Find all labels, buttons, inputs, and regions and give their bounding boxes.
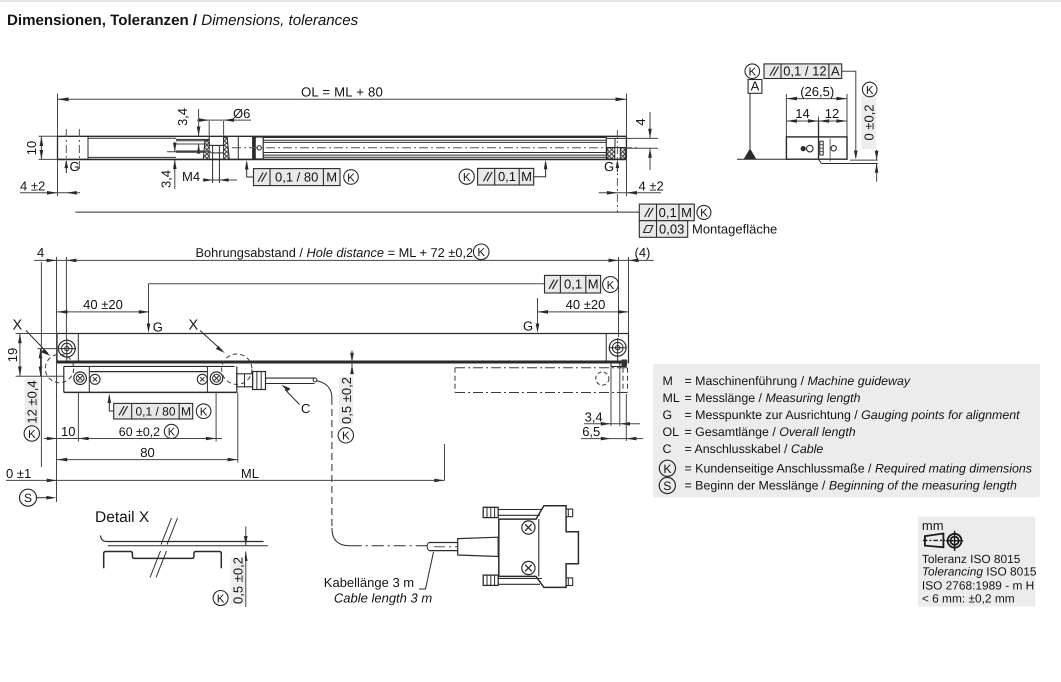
svg-text:G: G: [153, 320, 163, 335]
svg-text:OL= Gesamtlänge / Overall leng: OL= Gesamtlänge / Overall length: [663, 425, 856, 439]
svg-text:X: X: [13, 318, 23, 334]
svg-text:Bohrungsabstand / Hole distanc: Bohrungsabstand / Hole distance = ML + 7…: [196, 245, 474, 260]
svg-text:12 ±0,4: 12 ±0,4: [25, 380, 40, 423]
svg-text:0,1 / 12: 0,1 / 12: [783, 64, 826, 79]
svg-text:K: K: [866, 85, 874, 97]
svg-text:OL = ML + 80: OL = ML + 80: [301, 85, 383, 100]
svg-text:G= Messpunkte zur Ausrichtung: G= Messpunkte zur Ausrichtung / Gauging …: [663, 408, 1021, 422]
svg-text:0,1: 0,1: [564, 277, 582, 292]
svg-text:Dimensionen, Toleranzen / Dime: Dimensionen, Toleranzen / Dimensions, to…: [7, 12, 359, 29]
svg-text:0,1 / 80: 0,1 / 80: [275, 170, 318, 185]
svg-text:0,1: 0,1: [659, 205, 677, 220]
svg-text:X: X: [189, 318, 199, 334]
svg-text:14: 14: [795, 106, 809, 121]
svg-text:K: K: [347, 172, 355, 184]
svg-text:S: S: [663, 479, 671, 493]
svg-text:= Beginn der Messlänge / Begin: = Beginn der Messlänge / Beginning of th…: [685, 478, 1017, 492]
svg-text:4 ±2: 4 ±2: [20, 179, 45, 194]
svg-text:40 ±20: 40 ±20: [83, 297, 123, 312]
svg-text:K: K: [28, 429, 36, 441]
svg-text:12: 12: [825, 106, 839, 121]
svg-text:Tolerancing ISO 8015: Tolerancing ISO 8015: [922, 564, 1037, 578]
svg-text:S: S: [24, 491, 32, 505]
svg-text:K: K: [342, 431, 350, 443]
svg-text:Detail X: Detail X: [95, 509, 150, 526]
svg-text:A: A: [831, 64, 840, 79]
svg-text:A: A: [751, 79, 760, 94]
svg-text:0,03: 0,03: [659, 222, 684, 237]
svg-text:K: K: [700, 208, 708, 220]
svg-text:0 ±1: 0 ±1: [6, 466, 31, 481]
svg-text:4 ±2: 4 ±2: [639, 179, 664, 194]
svg-text:Ø6: Ø6: [233, 106, 250, 121]
svg-text:< 6 mm: ±0,2 mm: < 6 mm: ±0,2 mm: [922, 591, 1015, 605]
svg-text:6,5: 6,5: [582, 424, 600, 439]
svg-text:4: 4: [37, 245, 44, 260]
svg-text:K: K: [463, 172, 471, 184]
svg-text:= Kundenseitige Anschlussmaße: = Kundenseitige Anschlussmaße / Required…: [685, 461, 1032, 475]
svg-text:Cable length 3 m: Cable length 3 m: [334, 591, 432, 606]
svg-text:G: G: [70, 159, 80, 174]
svg-text:0 ±0,2: 0 ±0,2: [862, 104, 877, 140]
svg-text:0,5 ±0,2: 0,5 ±0,2: [231, 557, 246, 604]
svg-text:ISO 2768:1989 - m H: ISO 2768:1989 - m H: [922, 578, 1034, 592]
svg-text:M: M: [326, 170, 337, 185]
svg-text:G: G: [523, 319, 533, 334]
svg-text:10: 10: [61, 424, 75, 439]
svg-text:M: M: [521, 169, 532, 184]
svg-text:K: K: [663, 462, 671, 476]
svg-text:K: K: [607, 280, 615, 292]
svg-text:K: K: [748, 67, 756, 79]
svg-text:19: 19: [5, 348, 20, 362]
svg-text:M4: M4: [182, 169, 200, 184]
svg-text:(4): (4): [635, 245, 651, 260]
svg-text:C: C: [301, 401, 310, 416]
svg-text:K: K: [168, 427, 176, 439]
svg-text:3,4: 3,4: [159, 170, 174, 188]
svg-text:Montagefläche: Montagefläche: [692, 222, 777, 237]
svg-text:0,1: 0,1: [498, 169, 516, 184]
svg-text:0,5 ±0,2: 0,5 ±0,2: [339, 377, 354, 424]
svg-text:40 ±20: 40 ±20: [566, 297, 606, 312]
svg-text:(26,5): (26,5): [800, 84, 834, 99]
svg-text:M: M: [681, 205, 692, 220]
svg-text:M: M: [181, 404, 191, 418]
svg-text:Kabellänge 3 m: Kabellänge 3 m: [324, 575, 414, 590]
svg-text:10: 10: [24, 141, 39, 155]
svg-text:K: K: [217, 593, 225, 605]
svg-text:M= Maschinenführung / Machine: M= Maschinenführung / Machine guideway: [663, 374, 911, 388]
svg-text:mm: mm: [922, 518, 944, 533]
svg-text:K: K: [477, 247, 485, 259]
svg-text:M: M: [588, 277, 599, 292]
svg-text:G: G: [604, 159, 614, 174]
svg-text:3,4: 3,4: [175, 108, 190, 126]
svg-text:3,4: 3,4: [585, 409, 603, 424]
svg-text:ML: ML: [241, 466, 259, 481]
svg-text:60 ±0,2: 60 ±0,2: [119, 425, 160, 439]
svg-text:80: 80: [140, 445, 154, 460]
svg-text:K: K: [200, 407, 208, 419]
svg-text:0,1 / 80: 0,1 / 80: [135, 404, 175, 418]
svg-text:ML= Messlänge / Measuring leng: ML= Messlänge / Measuring length: [663, 391, 861, 405]
svg-text:4: 4: [633, 118, 648, 125]
svg-text:C= Anschlusskabel / Cable: C= Anschlusskabel / Cable: [663, 442, 824, 456]
